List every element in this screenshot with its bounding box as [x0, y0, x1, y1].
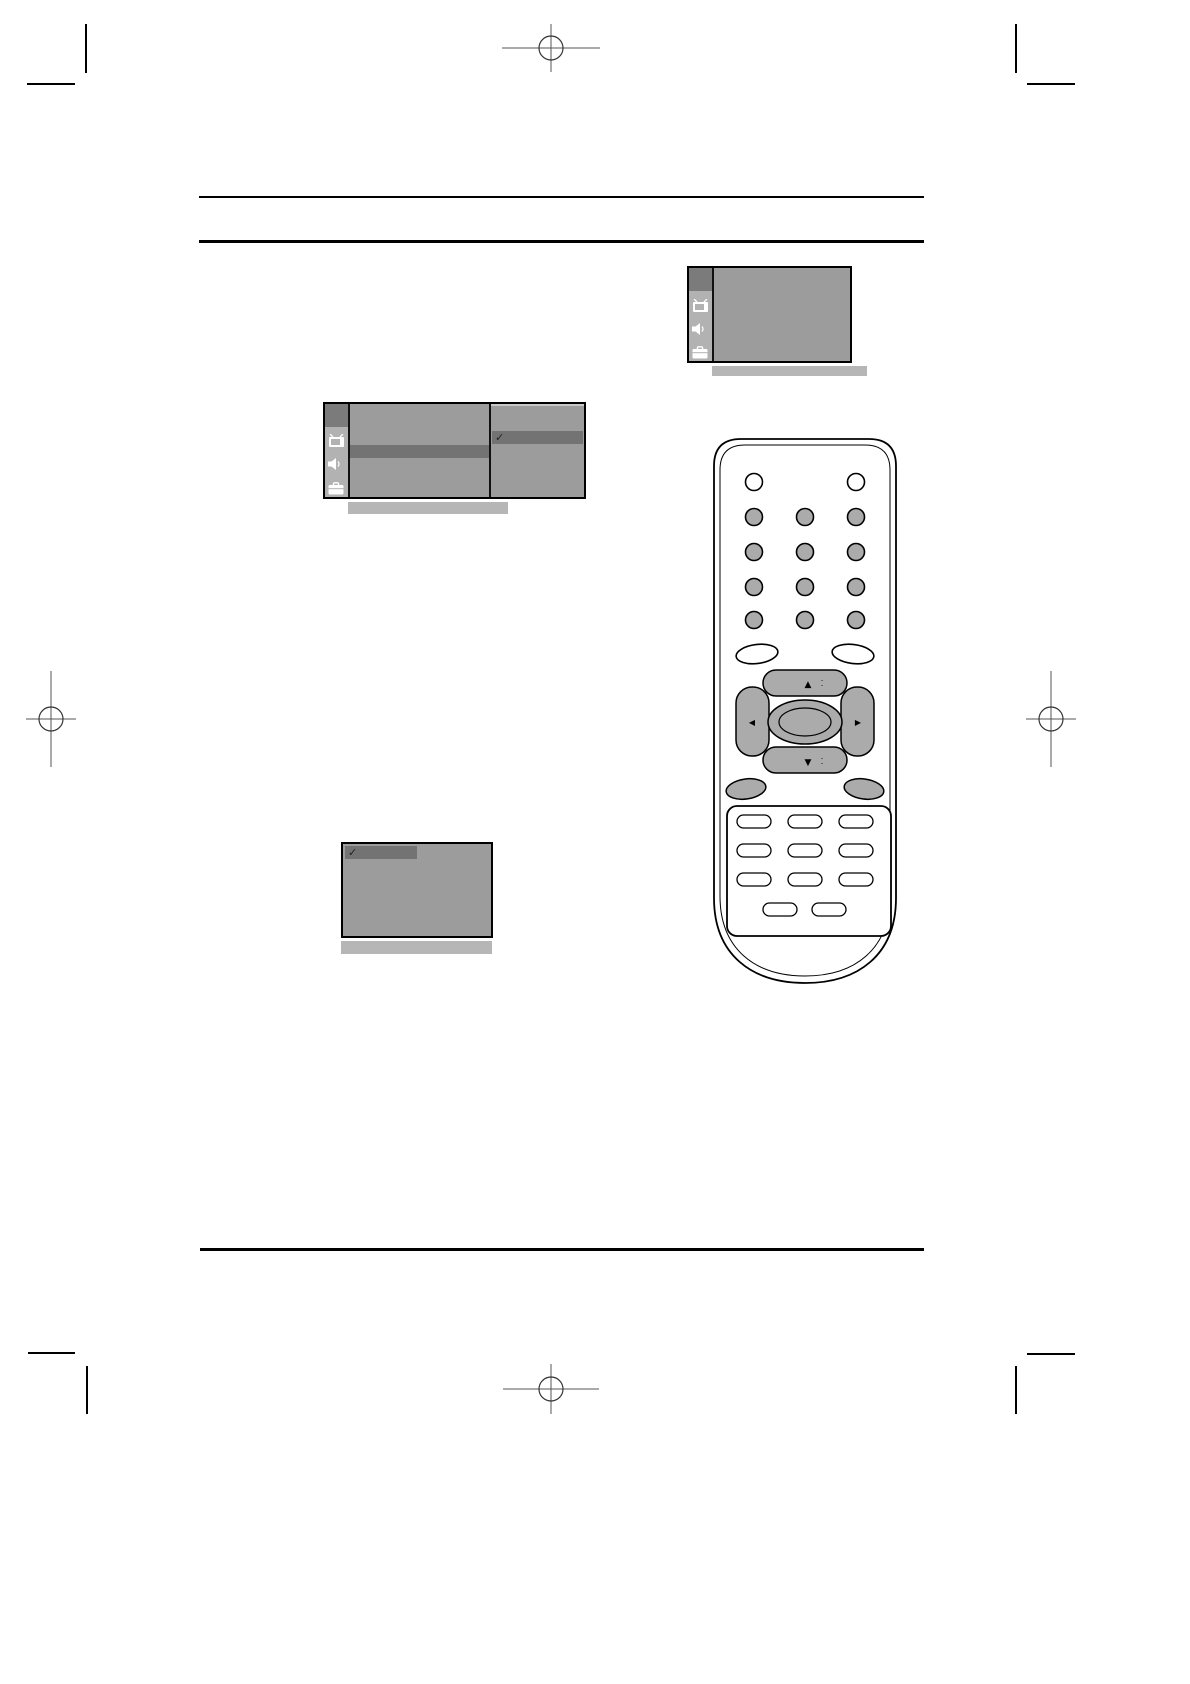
nav-down-arrow-glyph: ▼: [805, 758, 812, 768]
number-button: [848, 579, 865, 596]
crop-mark-bottom-left-vertical: [86, 1366, 88, 1414]
crop-mark-top-left-vertical: [85, 24, 87, 73]
nav-left-arrow-glyph: ◀: [749, 718, 756, 727]
registration-mark-right-middle: [1020, 665, 1082, 773]
registration-mark-bottom-center: [497, 1360, 605, 1418]
number-button: [746, 579, 763, 596]
checkmark-icon: ✓: [492, 431, 583, 444]
menu-caption-bar-1: [712, 366, 867, 376]
power-button: [746, 474, 763, 491]
submenu-panel: ✓: [491, 404, 584, 497]
crop-mark-bottom-right-horizontal: [1027, 1353, 1075, 1355]
active-tab-indicator: [689, 268, 712, 291]
nav-down-dots-glyph: ⁚: [821, 757, 824, 766]
menu-caption-bar-2: [348, 502, 508, 514]
number-button: [797, 509, 814, 526]
remote-control-illustration: ▲ ⁚ ▼ ⁚ ◀ ▶: [705, 430, 905, 992]
crop-mark-top-right-vertical: [1015, 24, 1017, 73]
number-button: [746, 612, 763, 629]
speaker-icon: [692, 323, 706, 335]
footer-rule: [200, 1248, 924, 1251]
menu-caption-bar-3: [341, 941, 492, 954]
nav-up-arrow-glyph: ▲: [805, 680, 812, 690]
submenu-top-edge: [491, 404, 584, 406]
tv-icon: [692, 299, 709, 313]
keypad-button: [788, 873, 822, 886]
number-button: [797, 544, 814, 561]
keypad-button: [839, 844, 873, 857]
mute-button: [848, 474, 865, 491]
number-button: [848, 544, 865, 561]
number-button: [848, 509, 865, 526]
crop-mark-bottom-right-vertical: [1015, 1366, 1017, 1414]
keypad-button: [839, 873, 873, 886]
menu-sidebar: [689, 268, 714, 361]
checkmark-icon: ✓: [345, 846, 417, 859]
crop-mark-top-right-horizontal: [1027, 83, 1075, 85]
registration-mark-left-middle: [20, 665, 82, 773]
number-button: [848, 612, 865, 629]
header-rule-top: [199, 196, 924, 198]
keypad-button: [763, 903, 797, 916]
submenu-selected-row: ✓: [492, 431, 583, 444]
tv-icon: [328, 434, 345, 448]
keypad-button: [737, 873, 771, 886]
osd-menu-screenshot-2: ✓: [323, 402, 586, 499]
number-button: [746, 544, 763, 561]
keypad-button: [812, 903, 846, 916]
speaker-icon: [328, 458, 342, 470]
briefcase-icon: [328, 482, 344, 495]
osd-menu-screenshot-3: ✓: [341, 842, 493, 938]
keypad-button: [788, 844, 822, 857]
nav-right-arrow-glyph: ▶: [855, 718, 862, 727]
keypad-button: [788, 815, 822, 828]
header-rule-bottom: [199, 240, 924, 243]
active-tab-indicator: [325, 404, 348, 427]
selected-option-row: ✓: [345, 846, 417, 859]
menu-highlight-row: [350, 445, 489, 458]
nav-up-dots-glyph: ⁚: [821, 679, 824, 688]
number-button: [746, 509, 763, 526]
crop-mark-top-left-horizontal: [27, 83, 75, 85]
ok-button: [779, 708, 831, 736]
keypad-button: [737, 844, 771, 857]
registration-mark-top-center: [496, 20, 606, 76]
crop-mark-bottom-left-horizontal: [28, 1352, 75, 1354]
menu-sidebar: [325, 404, 350, 497]
number-button: [797, 579, 814, 596]
osd-menu-screenshot-1: [687, 266, 852, 363]
keypad-button: [839, 815, 873, 828]
menu-panel: [350, 404, 489, 497]
briefcase-icon: [692, 346, 708, 359]
number-button: [797, 612, 814, 629]
menu-panel: [714, 268, 850, 361]
keypad-button: [737, 815, 771, 828]
manual-page: ✓ ✓: [0, 0, 1190, 1684]
